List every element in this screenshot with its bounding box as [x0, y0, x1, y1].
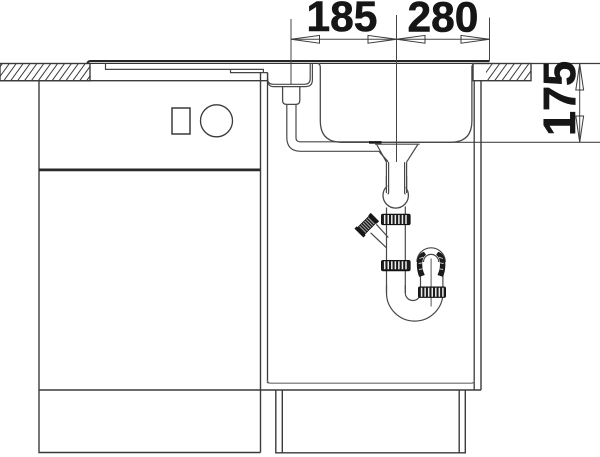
svg-text:280: 280	[408, 0, 479, 42]
svg-text:185: 185	[307, 0, 378, 41]
